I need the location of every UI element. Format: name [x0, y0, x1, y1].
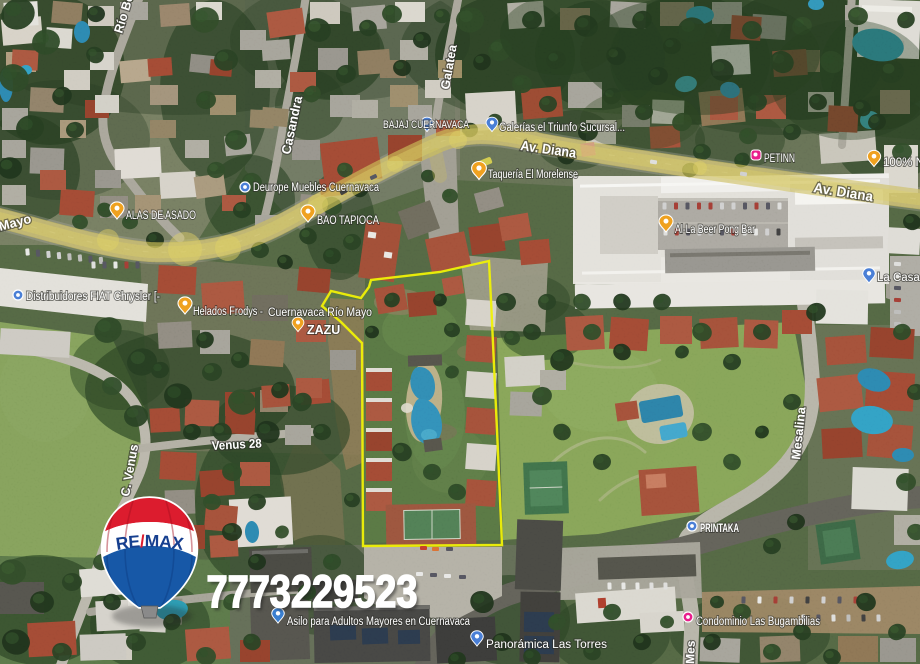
svg-text:BAJAJ CUERNAVACA: BAJAJ CUERNAVACA	[383, 119, 470, 131]
svg-text:Al-La Beer Pong Bar: Al-La Beer Pong Bar	[675, 224, 755, 236]
svg-text:ALAS DE ASADO: ALAS DE ASADO	[126, 210, 196, 222]
svg-text:Cuernavaca Río Mayo: Cuernavaca Río Mayo	[268, 307, 372, 319]
svg-text:Galerías el Triunfo Sucursal..: Galerías el Triunfo Sucursal...	[499, 122, 625, 134]
svg-text:Venus 28: Venus 28	[211, 436, 262, 453]
svg-text:PETINN: PETINN	[764, 153, 795, 165]
svg-text:7773229523: 7773229523	[207, 566, 418, 617]
svg-text:Taquería El Morelense: Taquería El Morelense	[488, 169, 578, 181]
svg-text:Deurope Muebles Cuernavaca: Deurope Muebles Cuernavaca	[253, 182, 379, 194]
svg-text:Panorámica Las Torres: Panorámica Las Torres	[486, 639, 607, 651]
svg-text:Mes: Mes	[683, 640, 698, 664]
svg-text:Helados Frodys -: Helados Frodys -	[193, 306, 263, 318]
svg-text:RE/MAX: RE/MAX	[114, 531, 185, 554]
svg-text:BAO TAPIOCA: BAO TAPIOCA	[317, 215, 379, 227]
svg-text:100% Nat: 100% Nat	[883, 157, 920, 169]
svg-text:La Casa de: La Casa de	[877, 272, 920, 284]
svg-text:PRINTAKA: PRINTAKA	[700, 521, 739, 535]
svg-text:ZAZU: ZAZU	[307, 323, 340, 337]
svg-text:Condominio Las Bugambilias: Condominio Las Bugambilias	[696, 616, 820, 628]
svg-text:Distribuidores FIAT Chrysler [: Distribuidores FIAT Chrysler [-	[26, 291, 160, 303]
